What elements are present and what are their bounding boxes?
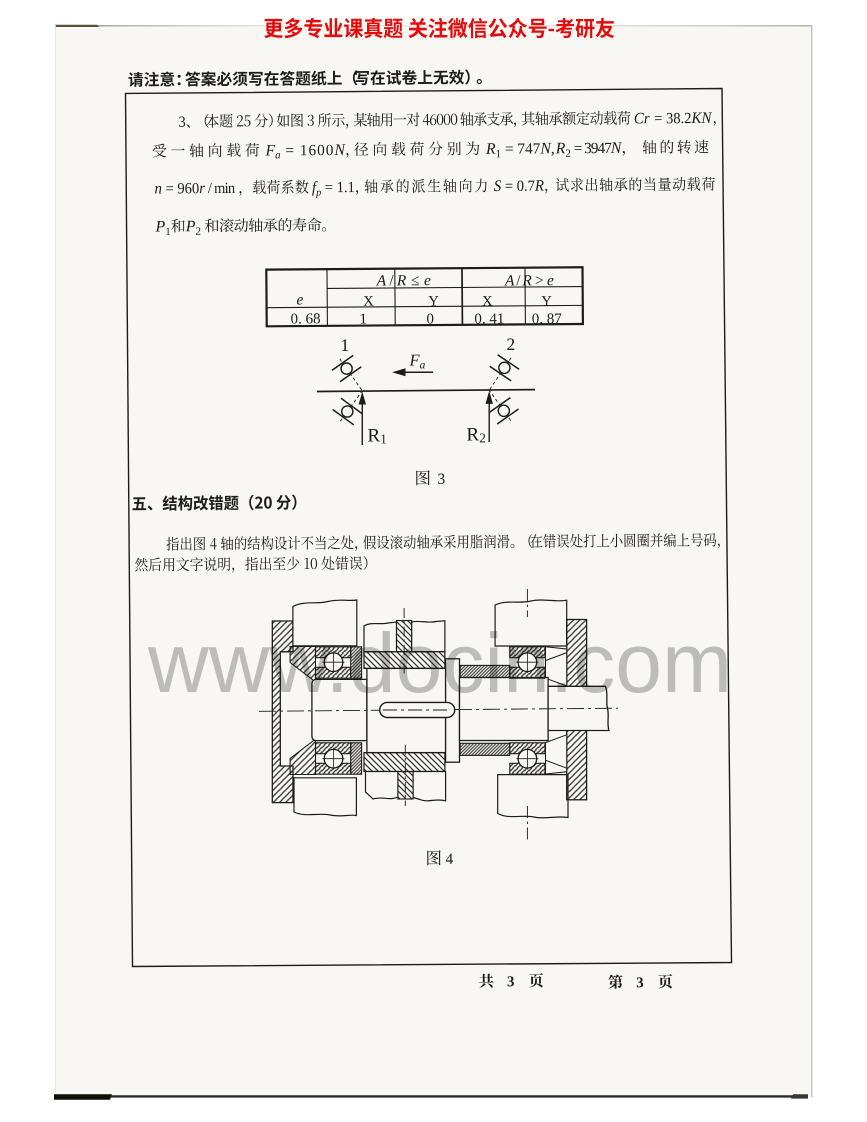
- svg-text:www.docin.com: www.docin.com: [147, 616, 732, 710]
